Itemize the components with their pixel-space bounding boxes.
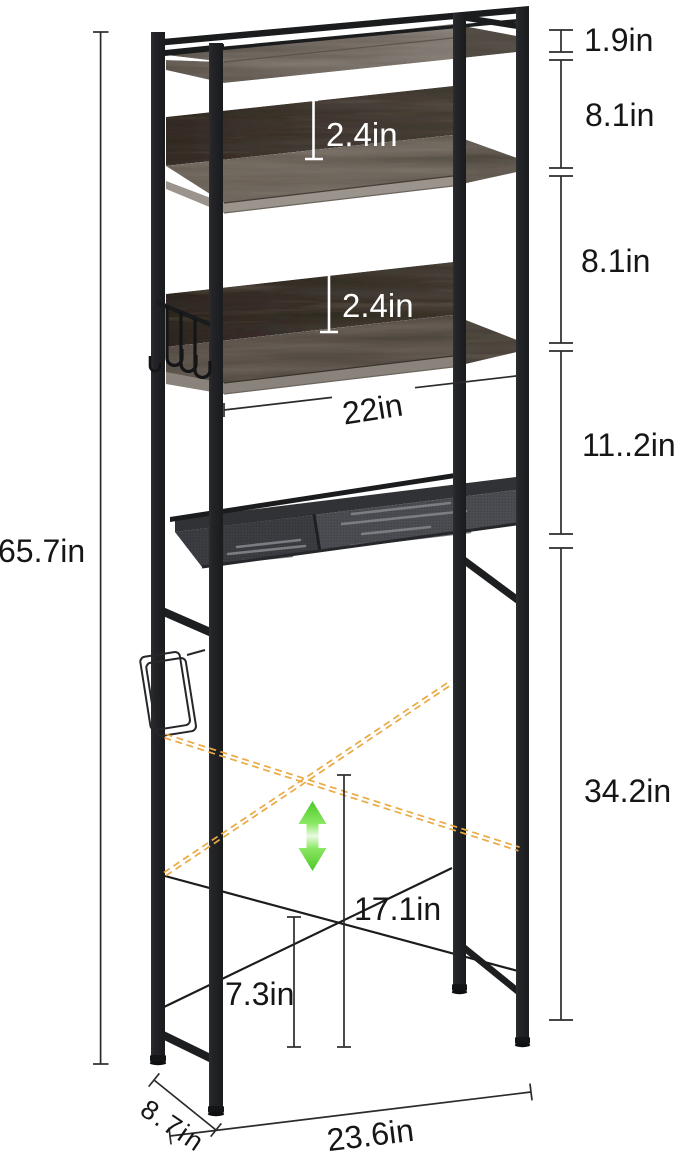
- svg-text:1.9in: 1.9in: [584, 22, 653, 58]
- svg-text:8.1in: 8.1in: [585, 97, 654, 133]
- svg-text:8.1in: 8.1in: [581, 243, 650, 279]
- svg-text:7.3in: 7.3in: [225, 976, 294, 1012]
- svg-text:2.4in: 2.4in: [326, 116, 398, 153]
- svg-text:17.1in: 17.1in: [354, 891, 441, 927]
- svg-text:65.7in: 65.7in: [0, 533, 85, 569]
- svg-text:34.2in: 34.2in: [584, 773, 671, 809]
- svg-text:11..2in: 11..2in: [582, 427, 676, 463]
- svg-text:2.4in: 2.4in: [342, 287, 414, 324]
